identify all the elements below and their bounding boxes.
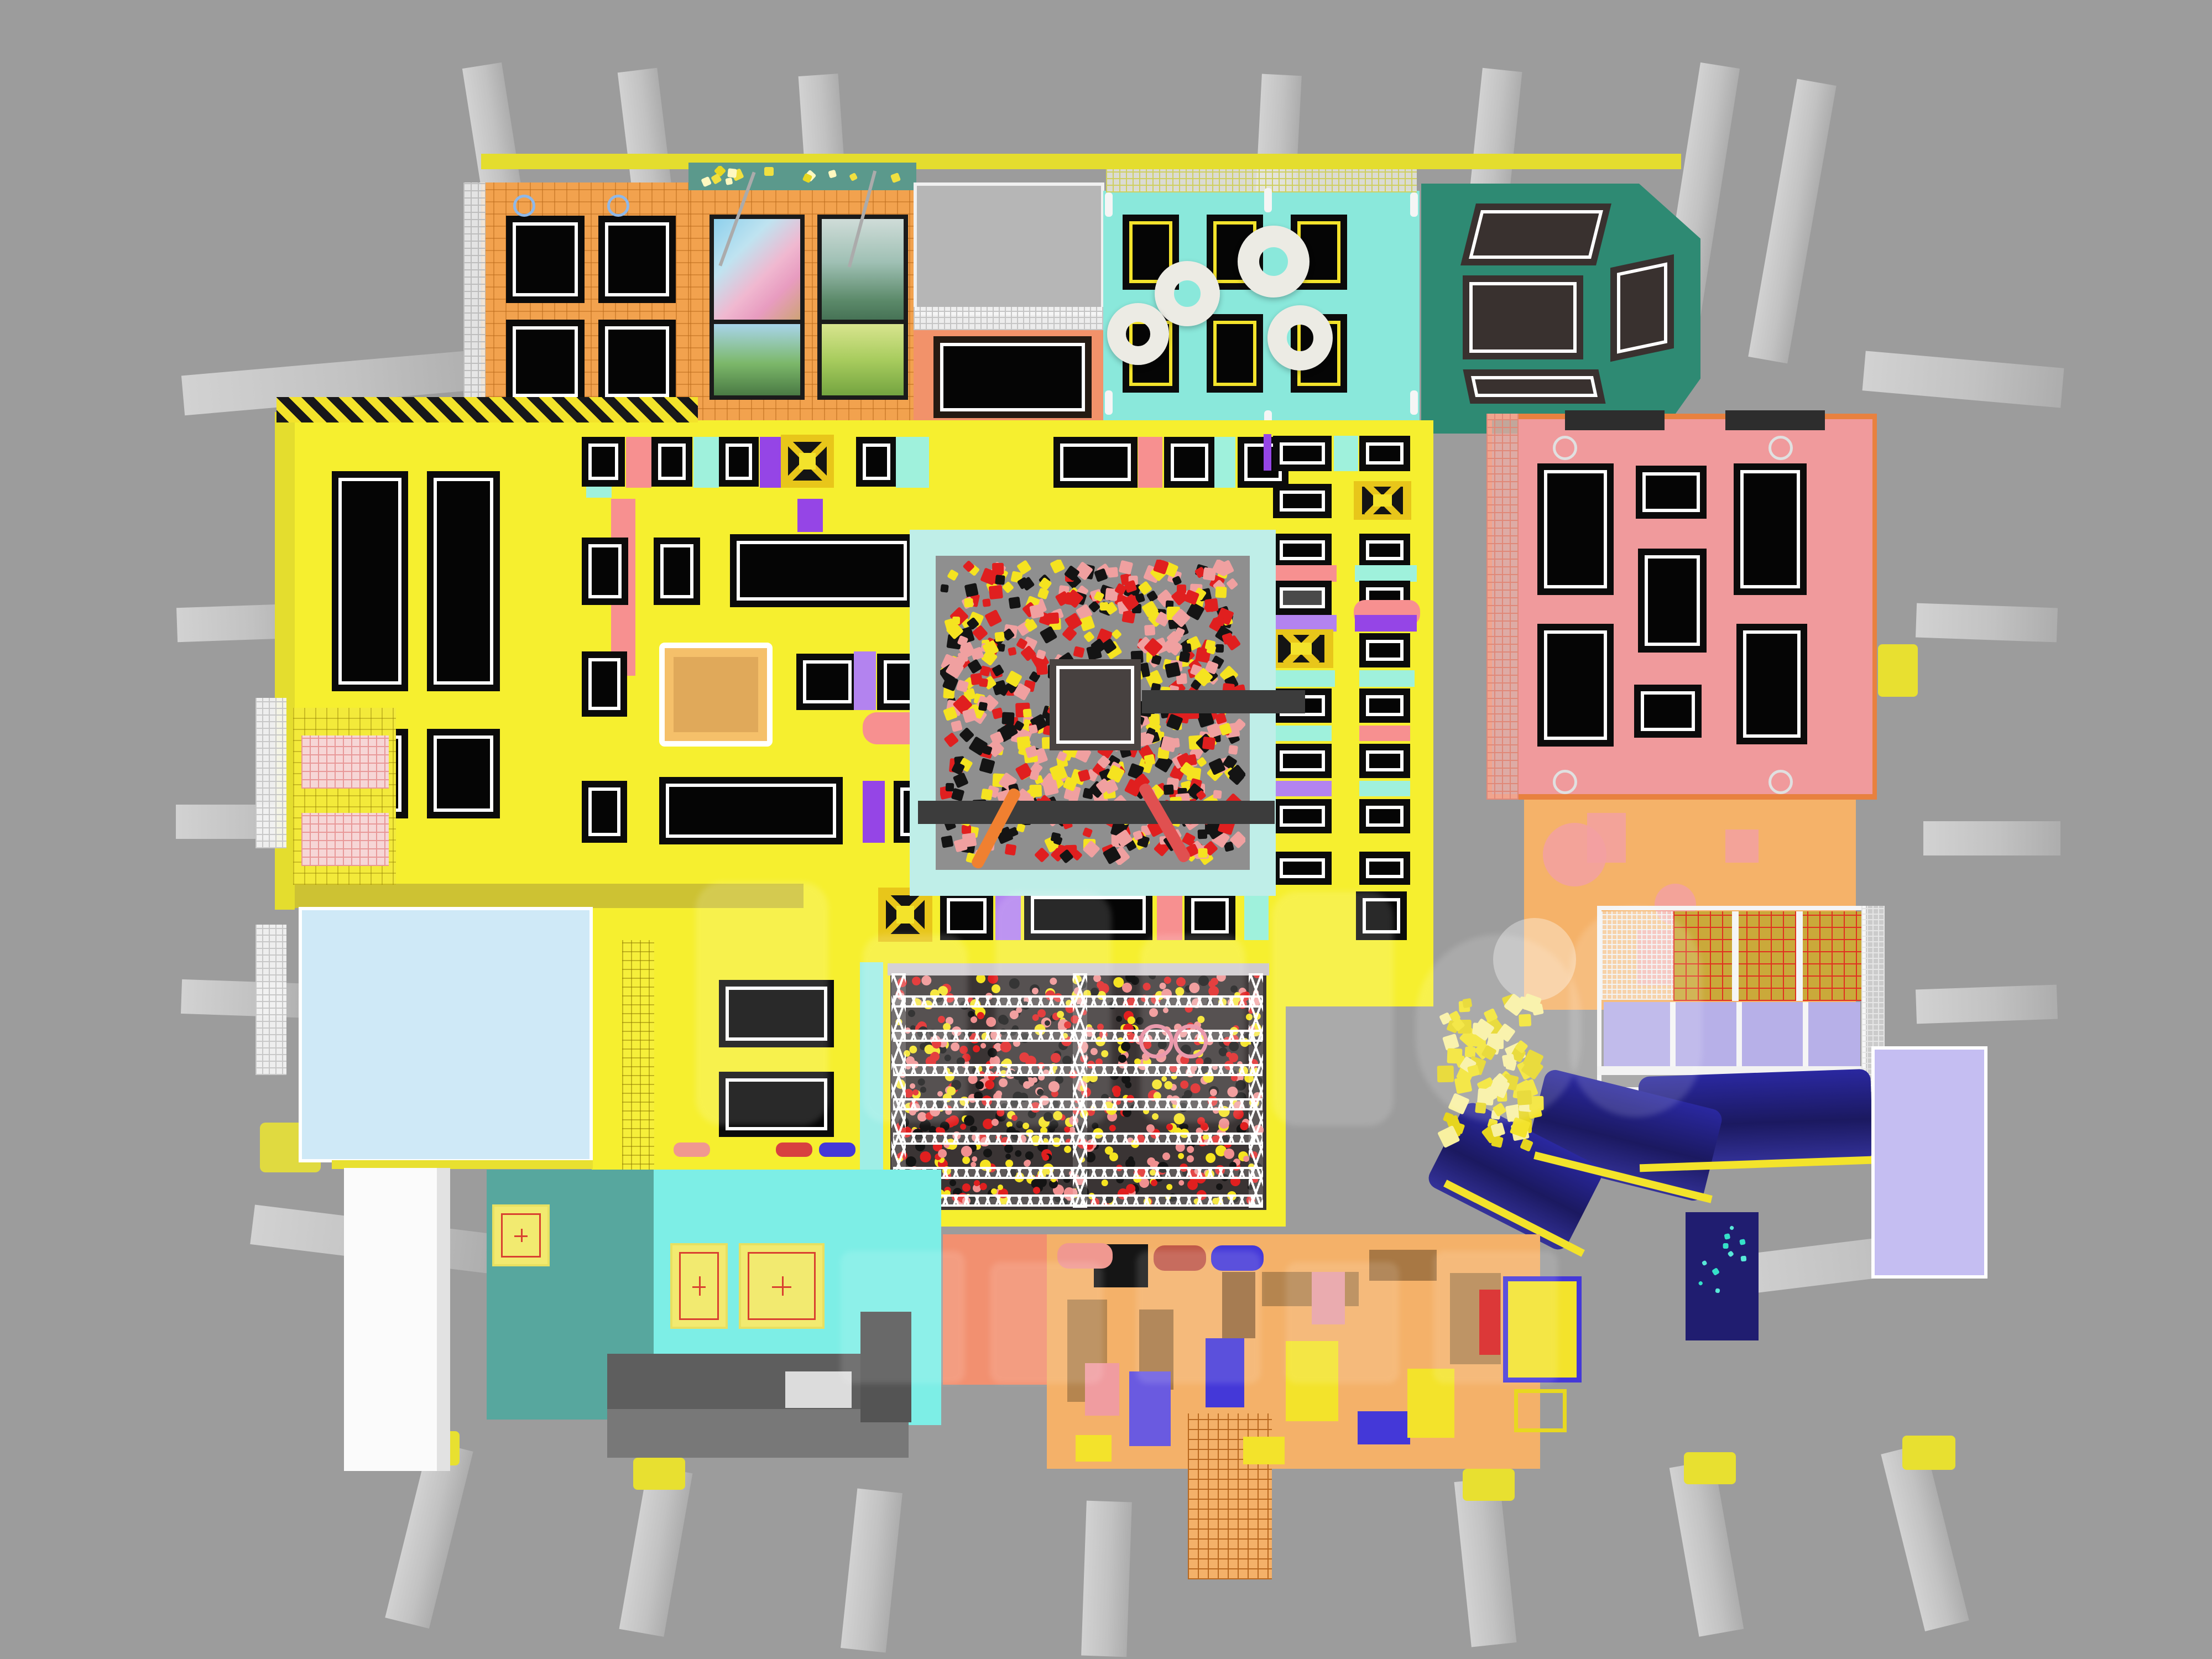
white-fence — [255, 698, 286, 848]
white-room-shadow — [437, 1168, 450, 1471]
inflatable-donut — [1107, 303, 1169, 365]
pillar-bottom-2 — [619, 1465, 693, 1637]
pillar-right-1 — [1863, 351, 2064, 408]
arena-trampoline — [1359, 744, 1410, 778]
arena-pad — [863, 781, 885, 843]
arena-pad — [626, 437, 651, 488]
arena-trampoline — [1359, 633, 1410, 667]
arena-trampoline — [1164, 437, 1215, 488]
arena-pad — [1264, 434, 1271, 471]
trampoline-park-topdown-render — [0, 0, 2212, 1659]
roof-beam-yellow — [481, 154, 1681, 169]
arena-trampoline — [427, 729, 500, 818]
room5-panel-right — [1610, 254, 1674, 362]
room4-trampoline — [1207, 314, 1263, 393]
cafe-chair-frame — [1514, 1389, 1567, 1432]
arena-pad — [1214, 437, 1235, 488]
watermark-glyph — [841, 1251, 965, 1384]
arena-trampoline — [1273, 534, 1332, 567]
tower-white-post — [1732, 911, 1739, 1001]
hazard-strip — [276, 397, 698, 422]
room5-panel-bottom — [1463, 369, 1605, 404]
arena-pad — [1244, 891, 1269, 940]
basketball-hoop — [1768, 436, 1793, 460]
watermark-glyph — [995, 891, 1112, 1126]
soft-cushion — [776, 1142, 812, 1157]
room6-trampoline — [1636, 466, 1707, 519]
basketball-hoop — [1768, 770, 1793, 794]
arena-trampoline-long — [730, 534, 914, 607]
corner-post — [1264, 188, 1272, 212]
decal-rect — [1725, 830, 1759, 863]
truss-column — [1249, 973, 1263, 1208]
room5-panel-center — [1463, 275, 1583, 359]
arena-trampoline — [719, 437, 759, 487]
arena-trampoline-tall — [427, 471, 500, 691]
backboard — [1725, 410, 1825, 430]
arena-trampoline — [582, 437, 625, 487]
basketball-hoop — [1553, 436, 1577, 460]
arena-trampoline — [1359, 799, 1410, 833]
arena-trampoline — [1273, 852, 1332, 885]
leftwall-pink-checker — [301, 813, 389, 866]
arena-pad — [1355, 565, 1417, 582]
watermark-glyph — [863, 935, 968, 1123]
arena-trampoline — [582, 651, 627, 717]
arena-pad — [1138, 437, 1162, 488]
arena-pad — [797, 499, 823, 532]
arena-pad — [1273, 781, 1332, 796]
gym-mat — [670, 1243, 728, 1329]
room3-trampoline — [933, 336, 1092, 418]
soft-cushion — [819, 1142, 855, 1157]
pillar-right-4 — [1916, 985, 2058, 1024]
arena-trampoline-gray — [1273, 581, 1332, 615]
room6-trampoline — [1736, 624, 1807, 744]
arena-trampoline — [1359, 436, 1410, 471]
backboard — [1565, 410, 1665, 430]
arena-trampoline — [940, 891, 993, 940]
arena-pad — [1355, 615, 1417, 632]
yellow-pad — [1878, 644, 1918, 697]
room3-fence — [914, 307, 1104, 330]
arena-trampoline — [1359, 688, 1410, 723]
arena-trampoline-tall — [332, 471, 408, 691]
room1-trampoline — [598, 216, 676, 303]
watermark-glyph — [1136, 1251, 1261, 1384]
white-room — [344, 1168, 437, 1471]
arena-trampoline — [582, 538, 628, 605]
mural-sofia — [709, 215, 805, 332]
gym-mat — [492, 1204, 550, 1266]
arena-trampoline — [582, 781, 627, 843]
arena-xpad — [781, 435, 834, 488]
tower-divider — [1736, 1002, 1742, 1067]
cafe-seat-blue — [1358, 1411, 1410, 1444]
pillar-cap — [1463, 1469, 1515, 1501]
arena-pad — [1359, 726, 1410, 741]
arena-trampoline — [1185, 891, 1235, 940]
arena-pad — [1359, 670, 1415, 687]
arena-trampoline — [1273, 799, 1332, 833]
room6-trampoline — [1537, 624, 1614, 747]
pillar-top-7 — [1748, 79, 1836, 364]
arena-pad — [1273, 670, 1335, 687]
room6-trampoline — [1537, 463, 1614, 595]
room1-net-wall — [463, 182, 486, 421]
watermark-glyph — [1286, 1262, 1399, 1384]
pillar-right-2 — [1916, 603, 2058, 643]
pillar-left-4 — [181, 979, 314, 1018]
arena-pad — [1157, 891, 1182, 940]
arena-pad — [1273, 726, 1332, 741]
arena-pad — [1334, 436, 1358, 471]
corner-post — [1410, 390, 1418, 415]
inflatable-donut — [1267, 305, 1333, 371]
arena-trampoline — [856, 437, 897, 487]
arena-pad — [896, 437, 929, 488]
arena-trampoline — [1359, 534, 1410, 567]
basketball-hoop — [1553, 770, 1577, 794]
watermark-glyph — [696, 882, 828, 1125]
arena-trampoline — [651, 437, 692, 487]
basketball-hoop — [513, 195, 535, 217]
room4-net-band — [1106, 169, 1417, 192]
lavender-wall — [1871, 1046, 1987, 1279]
pillar-cap — [1684, 1452, 1736, 1484]
net-wall-vertical — [622, 940, 654, 1200]
corner-post — [1105, 390, 1113, 415]
pillar-bottom-6 — [1670, 1460, 1744, 1637]
mural-tree — [709, 320, 805, 400]
inflatable-donut — [1238, 226, 1310, 298]
arena-trampoline-long — [659, 777, 843, 844]
cafe-seat-yellow — [1243, 1437, 1285, 1464]
arena-trampoline — [796, 654, 858, 710]
pillar-bottom-4 — [1081, 1501, 1132, 1657]
soft-cushion — [674, 1142, 710, 1157]
arena-pad — [760, 437, 781, 488]
pillar-cap — [1902, 1436, 1955, 1470]
arena-trampoline — [1273, 744, 1332, 778]
corner-post — [1410, 192, 1418, 217]
mural-grass — [817, 320, 908, 400]
arena-pad — [854, 651, 876, 710]
tower-white-post — [1796, 911, 1803, 1001]
watermark-glyph — [990, 1262, 1103, 1384]
corner-post — [1105, 192, 1113, 217]
decal-rect — [1587, 813, 1626, 863]
foam-pit-platform — [1050, 659, 1141, 750]
arena-trampoline — [1359, 852, 1410, 885]
arena-pad — [1359, 781, 1410, 796]
tower-divider — [1803, 1002, 1808, 1067]
room6-trampoline — [1638, 549, 1707, 653]
fence-pink-grid — [1486, 414, 1519, 800]
cafe-seat-yellow — [1076, 1435, 1112, 1462]
watermark-glyph — [1272, 891, 1394, 1126]
arena-trampoline — [1273, 436, 1332, 471]
pillar-right-3 — [1923, 821, 2060, 855]
arena-xpad — [1354, 481, 1411, 520]
pillar-bottom-3 — [841, 1489, 902, 1653]
room1-trampoline — [506, 216, 585, 303]
banner-glyphs — [1698, 1222, 1747, 1327]
pillar-cap — [633, 1458, 685, 1490]
inflatable-donut — [1155, 261, 1220, 326]
room6-trampoline — [1734, 463, 1807, 595]
watermark-glyph — [1416, 935, 1582, 1123]
room3-platform — [914, 182, 1104, 315]
arena-trampoline — [1053, 437, 1138, 488]
watermark-glyph — [1433, 1251, 1558, 1384]
arena-trampoline — [654, 538, 700, 605]
watermark-glyph — [1140, 935, 1245, 1123]
pillar-bottom-5 — [1454, 1478, 1517, 1647]
arena-pad — [1269, 565, 1337, 582]
room1-trampoline — [598, 320, 676, 404]
balance-beam — [918, 801, 1275, 824]
gym-mat — [739, 1243, 825, 1329]
watermark-glyph — [1569, 907, 1702, 1117]
mural-waterfall — [817, 215, 908, 332]
room1-trampoline — [506, 320, 585, 404]
balance-beam — [1142, 690, 1305, 713]
leftwall-pink-checker — [301, 735, 389, 789]
pillar-bottom-7 — [1881, 1443, 1969, 1631]
room5-panel-top — [1460, 204, 1611, 265]
arena-pad — [693, 437, 719, 488]
lightblue-room — [299, 907, 593, 1162]
arena-trampoline — [1273, 484, 1332, 518]
white-fence — [255, 925, 286, 1075]
airbag-platform — [659, 643, 773, 747]
room6-trampoline — [1634, 685, 1702, 738]
basketball-hoop — [607, 195, 629, 217]
arena-xpad — [1269, 629, 1333, 668]
arena-pad — [586, 487, 612, 498]
